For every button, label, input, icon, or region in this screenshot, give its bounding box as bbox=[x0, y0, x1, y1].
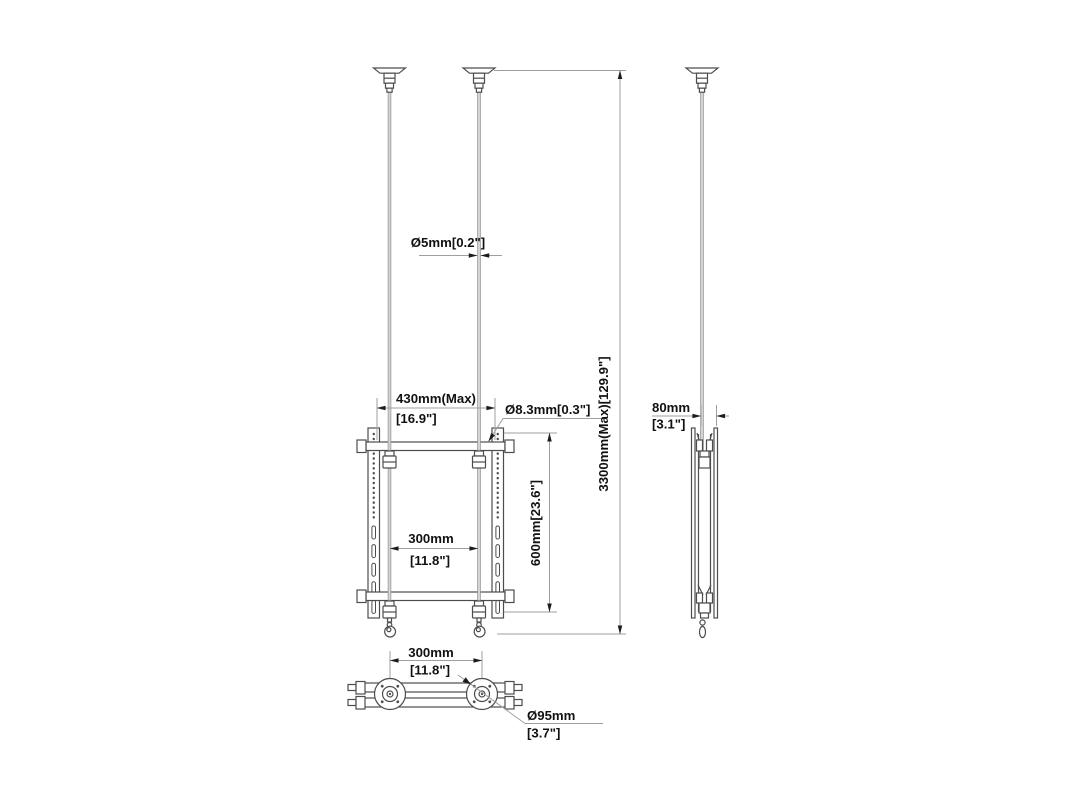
dim-bottom-spacing-label-mm: 300mm bbox=[408, 645, 453, 660]
dim-inner-width: 300mm [11.8"] bbox=[390, 531, 478, 568]
suspension-wire-side bbox=[701, 92, 704, 452]
ceiling-anchor-right bbox=[463, 68, 495, 92]
ceiling-anchor-left bbox=[374, 68, 406, 92]
dim-max-width-label-in: [16.9"] bbox=[396, 411, 437, 426]
dim-max-width-label-mm: 430mm(Max) bbox=[396, 391, 476, 406]
cable-gripper-bottom-right bbox=[473, 601, 486, 618]
dim-cable-diameter: Ø5mm[0.2"] bbox=[411, 235, 502, 256]
dim-profile-depth-label-mm: 80mm bbox=[652, 400, 690, 415]
side-view: 80mm [3.1"] bbox=[652, 68, 729, 638]
suspension-wire-right bbox=[478, 92, 481, 619]
drawing-canvas: Ø5mm[0.2"] 430mm(Max) [16.9"] Ø8.3mm[0.3… bbox=[0, 0, 1080, 810]
safety-hook-right bbox=[474, 618, 485, 637]
dim-max-drop: 3300mm(Max)[129.9"] bbox=[494, 71, 626, 635]
bottom-view: 300mm [11.8"] Ø95mm [3.7"] bbox=[348, 645, 603, 741]
dim-max-drop-label: 3300mm(Max)[129.9"] bbox=[596, 356, 611, 491]
safety-hook-left bbox=[385, 618, 396, 637]
dim-hole-diameter-label: Ø8.3mm[0.3"] bbox=[505, 402, 590, 417]
technical-drawing: Ø5mm[0.2"] 430mm(Max) [16.9"] Ø8.3mm[0.3… bbox=[0, 0, 1080, 810]
cable-gripper-bottom-left bbox=[383, 601, 396, 618]
front-view bbox=[357, 68, 514, 637]
dim-bottom-spacing-label-in: [11.8"] bbox=[410, 663, 450, 678]
dim-cable-diameter-label: Ø5mm[0.2"] bbox=[411, 235, 485, 250]
dim-hole-diameter: Ø8.3mm[0.3"] bbox=[489, 402, 602, 442]
cable-gripper-top-right bbox=[473, 451, 486, 468]
flange-left bbox=[375, 679, 406, 710]
flange-right bbox=[467, 679, 498, 710]
dim-bottom-spacing: 300mm [11.8"] bbox=[390, 645, 482, 678]
side-profile bbox=[692, 428, 718, 638]
dim-flange-diameter-label-mm: Ø95mm bbox=[527, 708, 575, 723]
dim-inner-width-label-mm: 300mm bbox=[408, 531, 453, 546]
dim-bracket-height: 600mm[23.6"] bbox=[504, 433, 557, 612]
suspension-wire-left bbox=[388, 92, 391, 619]
cable-gripper-top-left bbox=[383, 451, 396, 468]
dim-inner-width-label-in: [11.8"] bbox=[410, 553, 450, 568]
dim-flange-diameter-label-in: [3.7"] bbox=[527, 726, 560, 741]
mounting-rail-right bbox=[492, 428, 504, 618]
crossbar-top bbox=[357, 440, 514, 453]
ceiling-anchor-side bbox=[686, 68, 718, 92]
dim-bracket-height-label: 600mm[23.6"] bbox=[528, 480, 543, 566]
crossbar-bottom bbox=[357, 590, 514, 603]
dim-profile-depth: 80mm [3.1"] bbox=[652, 400, 729, 432]
dim-profile-depth-label-in: [3.1"] bbox=[652, 417, 685, 432]
mounting-rail-left bbox=[368, 428, 380, 618]
